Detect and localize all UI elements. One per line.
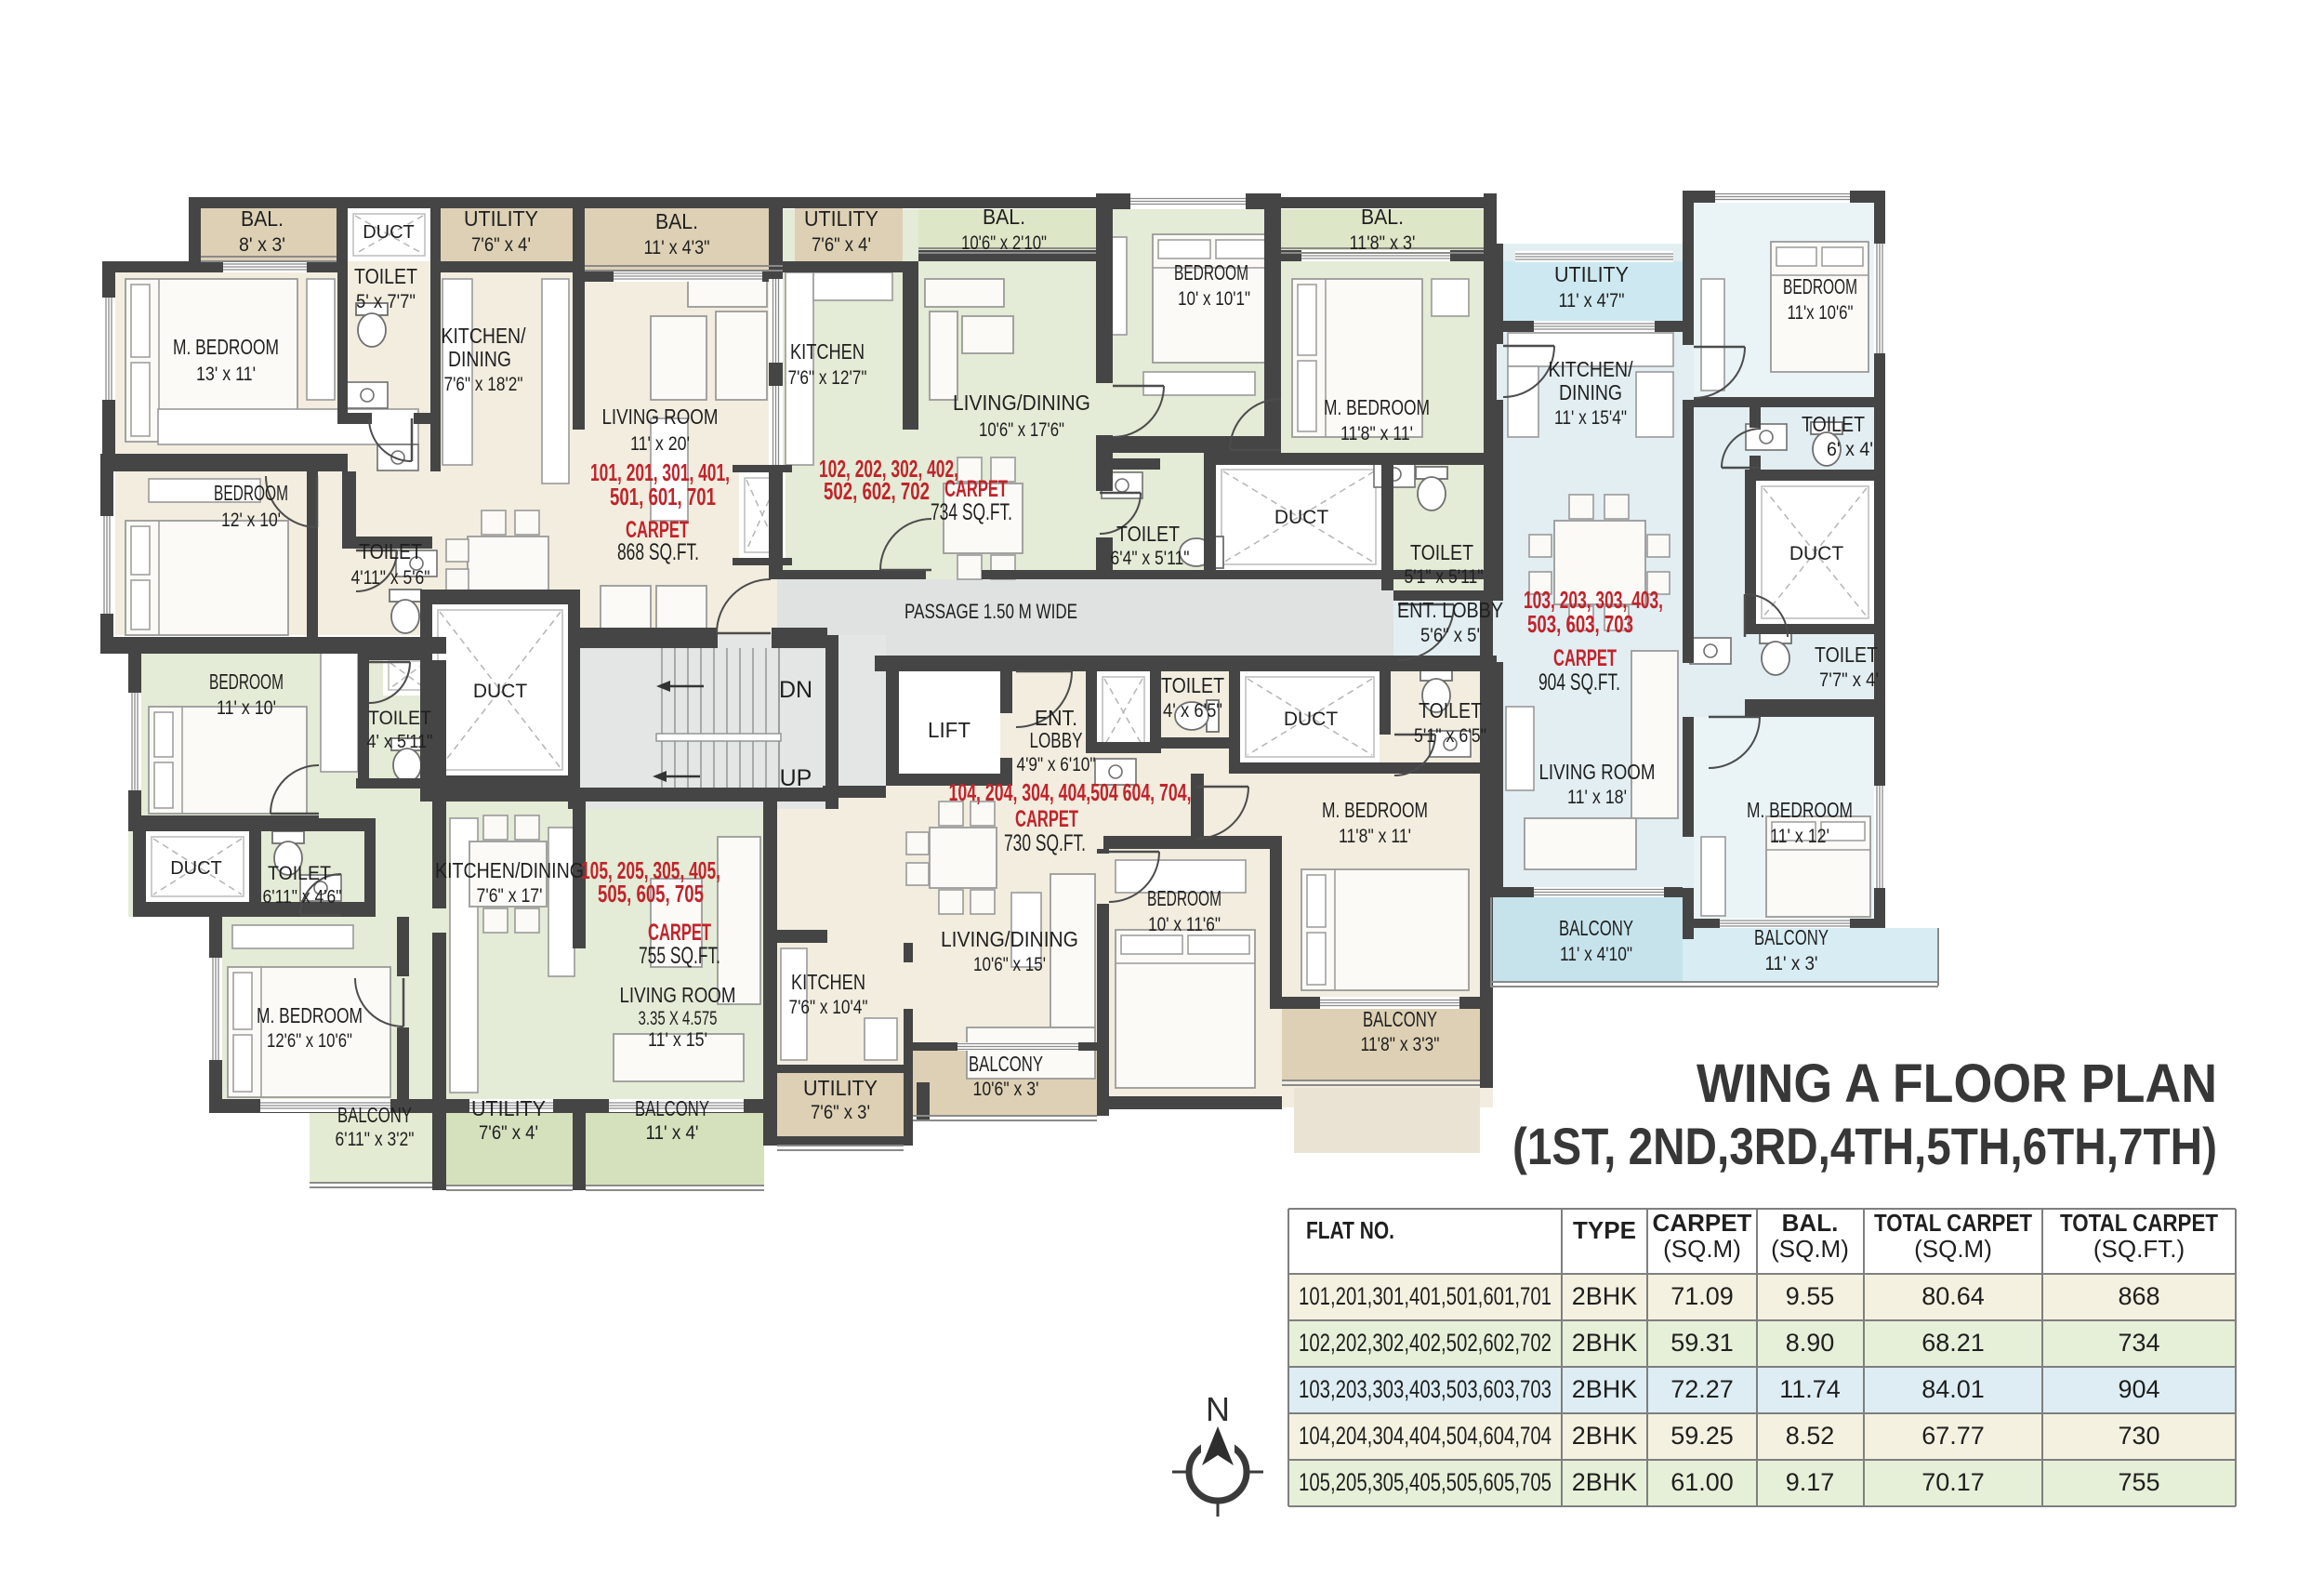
- svg-text:TOTAL CARPET: TOTAL CARPET: [2060, 1209, 2218, 1237]
- svg-text:6'11" x 4'6": 6'11" x 4'6": [263, 887, 342, 908]
- svg-text:4' x 5'11": 4' x 5'11": [367, 732, 433, 752]
- svg-text:11' x 20': 11' x 20': [630, 433, 690, 455]
- svg-text:DUCT: DUCT: [1284, 709, 1338, 730]
- svg-text:TYPE: TYPE: [1573, 1216, 1636, 1244]
- svg-text:71.09: 71.09: [1670, 1282, 1734, 1310]
- svg-text:BEDROOM: BEDROOM: [214, 481, 288, 505]
- svg-text:904: 904: [2118, 1375, 2159, 1403]
- svg-text:5'1" x 5'11": 5'1" x 5'11": [1405, 566, 1484, 588]
- svg-text:ENT.: ENT.: [1035, 706, 1077, 730]
- svg-text:BEDROOM: BEDROOM: [209, 669, 284, 694]
- svg-text:CARPET: CARPET: [1653, 1209, 1752, 1237]
- svg-text:BALCONY: BALCONY: [1363, 1007, 1437, 1031]
- svg-text:UTILITY: UTILITY: [803, 1076, 878, 1100]
- svg-text:KITCHEN: KITCHEN: [790, 339, 865, 364]
- svg-text:BAL.: BAL.: [983, 205, 1025, 229]
- svg-text:LIVING/DINING: LIVING/DINING: [941, 927, 1078, 951]
- svg-text:67.77: 67.77: [1921, 1422, 1985, 1450]
- svg-text:TOILET: TOILET: [1815, 643, 1878, 667]
- svg-text:11'8" x 11': 11'8" x 11': [1339, 826, 1411, 847]
- svg-text:70.17: 70.17: [1921, 1468, 1985, 1496]
- svg-text:TOILET: TOILET: [1419, 698, 1482, 722]
- svg-text:10' x 11'6": 10' x 11'6": [1148, 914, 1221, 935]
- svg-text:(SQ.M): (SQ.M): [1914, 1235, 1992, 1263]
- svg-text:10'6" x 15': 10'6" x 15': [973, 954, 1046, 975]
- svg-text:12' x 10': 12' x 10': [221, 510, 281, 531]
- svg-text:6' x 4': 6' x 4': [1827, 439, 1873, 460]
- svg-text:KITCHEN: KITCHEN: [791, 970, 865, 994]
- svg-text:M. BEDROOM: M. BEDROOM: [257, 1003, 363, 1027]
- svg-text:7'6" x 12'7": 7'6" x 12'7": [788, 367, 867, 389]
- svg-text:(SQ.M): (SQ.M): [1771, 1235, 1849, 1263]
- svg-text:DUCT: DUCT: [1274, 507, 1328, 528]
- svg-text:4' x 6'5": 4' x 6'5": [1163, 700, 1222, 722]
- svg-text:CARPET: CARPET: [1553, 645, 1617, 671]
- svg-text:CARPET: CARPET: [944, 476, 1008, 502]
- svg-text:2BHK: 2BHK: [1572, 1282, 1638, 1310]
- svg-text:BAL.: BAL.: [1361, 205, 1404, 229]
- svg-text:103,203,303,403,503,603,703: 103,203,303,403,503,603,703: [1299, 1375, 1552, 1403]
- svg-text:734: 734: [2118, 1329, 2159, 1357]
- svg-text:7'6" x 4': 7'6" x 4': [812, 234, 871, 256]
- svg-text:9.17: 9.17: [1786, 1468, 1835, 1496]
- svg-text:734 SQ.FT.: 734 SQ.FT.: [931, 499, 1012, 525]
- svg-text:BALCONY: BALCONY: [969, 1052, 1043, 1076]
- svg-text:M. BEDROOM: M. BEDROOM: [1747, 798, 1853, 822]
- svg-text:TOILET: TOILET: [359, 539, 422, 563]
- svg-text:12'6" x 10'6": 12'6" x 10'6": [267, 1030, 352, 1052]
- svg-text:59.31: 59.31: [1670, 1329, 1734, 1357]
- svg-text:4'9" x 6'10": 4'9" x 6'10": [1017, 754, 1096, 775]
- svg-text:BEDROOM: BEDROOM: [1147, 886, 1221, 910]
- svg-text:13' x 11': 13' x 11': [196, 364, 256, 385]
- svg-text:8.90: 8.90: [1786, 1329, 1835, 1357]
- svg-text:11' x 18': 11' x 18': [1567, 787, 1627, 808]
- svg-text:KITCHEN/: KITCHEN/: [1549, 357, 1634, 381]
- svg-text:68.21: 68.21: [1921, 1329, 1985, 1357]
- svg-text:UTILITY: UTILITY: [1554, 262, 1629, 286]
- svg-text:ENT. LOBBY: ENT. LOBBY: [1397, 598, 1503, 622]
- svg-text:6'4" x 5'11": 6'4" x 5'11": [1111, 548, 1190, 569]
- svg-text:11' x 4'3": 11' x 4'3": [644, 237, 710, 258]
- svg-text:WING A FLOOR PLAN: WING A FLOOR PLAN: [1697, 1053, 2217, 1114]
- svg-text:84.01: 84.01: [1921, 1375, 1985, 1403]
- svg-text:BEDROOM: BEDROOM: [1174, 260, 1248, 285]
- svg-text:BALCONY: BALCONY: [635, 1096, 709, 1120]
- svg-text:LIVING/DINING: LIVING/DINING: [953, 391, 1090, 415]
- svg-text:7'6" x 10'4": 7'6" x 10'4": [789, 997, 868, 1018]
- svg-text:UP: UP: [780, 765, 812, 791]
- svg-text:M. BEDROOM: M. BEDROOM: [1324, 395, 1430, 419]
- svg-text:CARPET: CARPET: [648, 920, 711, 946]
- svg-text:M. BEDROOM: M. BEDROOM: [173, 335, 279, 359]
- svg-text:80.64: 80.64: [1921, 1282, 1985, 1310]
- svg-text:BALCONY: BALCONY: [1754, 925, 1829, 949]
- svg-text:(1ST, 2ND,3RD,4TH,5TH,6TH,7TH): (1ST, 2ND,3RD,4TH,5TH,6TH,7TH): [1512, 1117, 2217, 1175]
- svg-text:TOILET: TOILET: [1116, 522, 1180, 546]
- svg-text:904 SQ.FT.: 904 SQ.FT.: [1538, 669, 1620, 696]
- svg-text:2BHK: 2BHK: [1572, 1468, 1638, 1496]
- svg-text:KITCHEN/DINING: KITCHEN/DINING: [435, 858, 584, 882]
- svg-text:61.00: 61.00: [1670, 1468, 1734, 1496]
- svg-text:LIVING ROOM: LIVING ROOM: [1539, 760, 1656, 784]
- svg-text:11'x 10'6": 11'x 10'6": [1788, 302, 1854, 324]
- svg-text:7'6" x 18'2": 7'6" x 18'2": [444, 374, 523, 395]
- svg-text:11' x 4': 11' x 4': [646, 1122, 699, 1144]
- svg-text:5' x 7'7": 5' x 7'7": [356, 291, 416, 312]
- svg-text:7'6" x 17': 7'6" x 17': [477, 885, 543, 907]
- svg-text:DN: DN: [779, 677, 812, 703]
- svg-text:N: N: [1206, 1390, 1230, 1428]
- svg-text:755: 755: [2118, 1468, 2159, 1496]
- svg-text:8.52: 8.52: [1786, 1422, 1835, 1450]
- svg-text:11' x 15'4": 11' x 15'4": [1554, 407, 1627, 429]
- svg-text:503, 603, 703: 503, 603, 703: [1527, 610, 1633, 638]
- svg-text:BAL.: BAL.: [655, 209, 698, 233]
- svg-text:DUCT: DUCT: [473, 681, 527, 702]
- svg-text:5'1" x 6'5": 5'1" x 6'5": [1414, 725, 1486, 747]
- svg-text:7'6" x 4': 7'6" x 4': [479, 1122, 538, 1144]
- svg-text:102,202,302,402,502,602,702: 102,202,302,402,502,602,702: [1299, 1329, 1552, 1357]
- svg-text:LOBBY: LOBBY: [1030, 728, 1083, 752]
- svg-text:5'6" x 5': 5'6" x 5': [1420, 625, 1480, 646]
- svg-text:730 SQ.FT.: 730 SQ.FT.: [1004, 830, 1086, 856]
- svg-text:M. BEDROOM: M. BEDROOM: [1322, 798, 1428, 822]
- svg-text:72.27: 72.27: [1670, 1375, 1734, 1403]
- svg-text:9.55: 9.55: [1786, 1282, 1835, 1310]
- svg-text:CARPET: CARPET: [1015, 806, 1078, 832]
- svg-text:10'6" x 3': 10'6" x 3': [973, 1079, 1039, 1100]
- svg-text:6'11" x 3'2": 6'11" x 3'2": [336, 1129, 415, 1150]
- svg-text:104, 204, 304, 404,504 604, 7: 104, 204, 304, 404,504 604, 704,: [949, 778, 1192, 806]
- svg-text:11.74: 11.74: [1779, 1375, 1841, 1403]
- svg-text:101,201,301,401,501,601,701: 101,201,301,401,501,601,701: [1299, 1282, 1552, 1310]
- svg-text:2BHK: 2BHK: [1572, 1329, 1638, 1357]
- svg-text:KITCHEN/: KITCHEN/: [442, 324, 527, 348]
- svg-text:11' x 4'10": 11' x 4'10": [1560, 944, 1632, 965]
- svg-text:7'7" x 4': 7'7" x 4': [1819, 669, 1879, 691]
- svg-text:502, 602, 702: 502, 602, 702: [824, 477, 930, 505]
- svg-text:11' x 12': 11' x 12': [1770, 826, 1829, 847]
- svg-text:(SQ.FT.): (SQ.FT.): [2093, 1235, 2185, 1263]
- svg-text:UTILITY: UTILITY: [464, 206, 538, 231]
- svg-text:BEDROOM: BEDROOM: [1783, 274, 1857, 298]
- svg-text:UTILITY: UTILITY: [804, 206, 878, 231]
- svg-text:2BHK: 2BHK: [1572, 1422, 1638, 1450]
- svg-text:3.35 X 4.575: 3.35 X 4.575: [639, 1008, 718, 1029]
- svg-text:TOILET: TOILET: [368, 708, 431, 729]
- svg-text:11' x 4'7": 11' x 4'7": [1559, 290, 1625, 311]
- svg-text:UTILITY: UTILITY: [471, 1096, 546, 1120]
- svg-text:TOILET: TOILET: [268, 863, 331, 884]
- svg-text:7'6" x 3': 7'6" x 3': [811, 1102, 870, 1123]
- svg-text:BALCONY: BALCONY: [1559, 916, 1633, 940]
- svg-text:LIVING ROOM: LIVING ROOM: [602, 404, 719, 429]
- svg-text:505, 605, 705: 505, 605, 705: [598, 880, 704, 908]
- svg-text:DINING: DINING: [1559, 380, 1622, 404]
- svg-text:104,204,304,404,504,604,704: 104,204,304,404,504,604,704: [1299, 1422, 1552, 1450]
- svg-text:LIFT: LIFT: [928, 718, 971, 742]
- svg-text:10'6" x 2'10": 10'6" x 2'10": [961, 232, 1047, 254]
- svg-text:10'6" x 17'6": 10'6" x 17'6": [979, 419, 1064, 441]
- svg-text:BAL.: BAL.: [241, 206, 284, 231]
- svg-text:11' x 3': 11' x 3': [1765, 953, 1818, 974]
- svg-text:868 SQ.FT.: 868 SQ.FT.: [617, 539, 699, 565]
- svg-text:DINING: DINING: [448, 347, 511, 371]
- svg-text:501, 601, 701: 501, 601, 701: [610, 483, 716, 510]
- svg-text:2BHK: 2BHK: [1572, 1375, 1638, 1403]
- svg-text:105,205,305,405,505,605,705: 105,205,305,405,505,605,705: [1299, 1468, 1552, 1496]
- svg-text:868: 868: [2118, 1282, 2159, 1310]
- svg-text:11' x 15': 11' x 15': [648, 1029, 707, 1051]
- svg-text:(SQ.M): (SQ.M): [1663, 1235, 1741, 1263]
- svg-text:11'8" x 3': 11'8" x 3': [1350, 232, 1416, 254]
- svg-text:DUCT: DUCT: [170, 858, 222, 879]
- svg-text:TOILET: TOILET: [354, 264, 417, 288]
- svg-text:10' x 10'1": 10' x 10'1": [1178, 288, 1250, 310]
- svg-text:59.25: 59.25: [1670, 1422, 1734, 1450]
- svg-text:11'8" x 11': 11'8" x 11': [1340, 423, 1413, 444]
- svg-text:BAL.: BAL.: [1782, 1209, 1839, 1237]
- svg-text:4'11" x 5'6": 4'11" x 5'6": [351, 567, 430, 589]
- svg-text:7'6" x 4': 7'6" x 4': [471, 234, 531, 256]
- svg-text:11'8" x 3'3": 11'8" x 3'3": [1361, 1034, 1440, 1055]
- svg-text:730: 730: [2118, 1422, 2159, 1450]
- svg-text:DUCT: DUCT: [363, 222, 415, 243]
- svg-text:BALCONY: BALCONY: [337, 1103, 412, 1127]
- svg-text:11' x 10': 11' x 10': [217, 697, 276, 719]
- svg-text:TOTAL CARPET: TOTAL CARPET: [1874, 1209, 2032, 1237]
- svg-text:8' x 3': 8' x 3': [239, 234, 285, 256]
- svg-text:FLAT NO.: FLAT NO.: [1306, 1216, 1394, 1244]
- svg-text:DUCT: DUCT: [1789, 543, 1843, 564]
- svg-text:LIVING ROOM: LIVING ROOM: [620, 983, 736, 1007]
- svg-text:755 SQ.FT.: 755 SQ.FT.: [639, 943, 720, 969]
- svg-text:TOILET: TOILET: [1161, 673, 1224, 697]
- svg-text:TOILET: TOILET: [1410, 540, 1473, 564]
- svg-text:PASSAGE 1.50 M WIDE: PASSAGE 1.50 M WIDE: [905, 600, 1077, 623]
- svg-text:TOILET: TOILET: [1802, 412, 1865, 436]
